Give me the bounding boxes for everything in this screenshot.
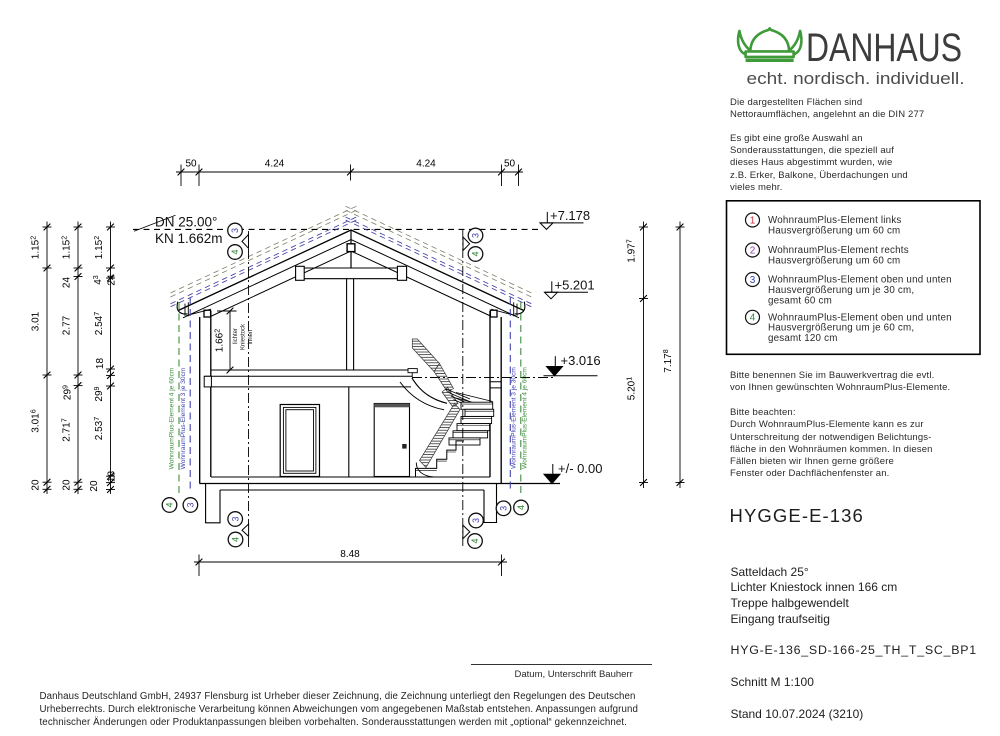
svg-text:2.537: 2.537	[92, 417, 105, 440]
svg-text:WohnraumPlus-Element links: WohnraumPlus-Element links	[768, 215, 902, 226]
svg-text:gesamt 120 cm: gesamt 120 cm	[768, 333, 838, 344]
svg-text:20: 20	[62, 479, 73, 491]
svg-text:3.016: 3.016	[29, 409, 42, 432]
svg-text:18: 18	[107, 471, 118, 483]
svg-text:WohnraumPlus-Element oben und: WohnraumPlus-Element oben und unten	[768, 275, 952, 286]
svg-text:WohnraumPlus-Element oben und: WohnraumPlus-Element oben und unten	[768, 312, 952, 323]
svg-text:gesamt 60 cm: gesamt 60 cm	[768, 295, 832, 306]
svg-text:1: 1	[750, 215, 756, 226]
svg-text:Hausvergrößerung um 60 cm: Hausvergrößerung um 60 cm	[768, 225, 900, 236]
svg-text:Hausvergrößerung um je 30 cm,: Hausvergrößerung um je 30 cm,	[768, 285, 914, 296]
svg-text:3: 3	[750, 275, 756, 286]
svg-text:2: 2	[750, 245, 756, 256]
svg-text:Hausvergrößerung um 60 cm: Hausvergrößerung um 60 cm	[768, 255, 900, 266]
svg-text:8.48: 8.48	[340, 549, 360, 560]
svg-text:3: 3	[471, 518, 481, 523]
svg-text:20: 20	[89, 480, 100, 492]
svg-text:4: 4	[516, 505, 526, 510]
svg-text:2.717: 2.717	[60, 418, 73, 441]
svg-text:Hausvergrößerung um je 60 cm,: Hausvergrößerung um je 60 cm,	[768, 323, 914, 334]
svg-text:3: 3	[499, 506, 509, 511]
svg-text:20: 20	[31, 479, 42, 491]
svg-text:4: 4	[470, 538, 480, 543]
svg-text:3: 3	[186, 502, 196, 507]
svg-text:4: 4	[231, 537, 241, 542]
svg-text:+/- 0.00: +/- 0.00	[558, 461, 602, 476]
svg-text:4: 4	[165, 502, 175, 507]
svg-text:WohnraumPlus-Element rechts: WohnraumPlus-Element rechts	[768, 245, 909, 256]
svg-text:4: 4	[750, 313, 756, 324]
svg-text:3: 3	[230, 516, 240, 521]
